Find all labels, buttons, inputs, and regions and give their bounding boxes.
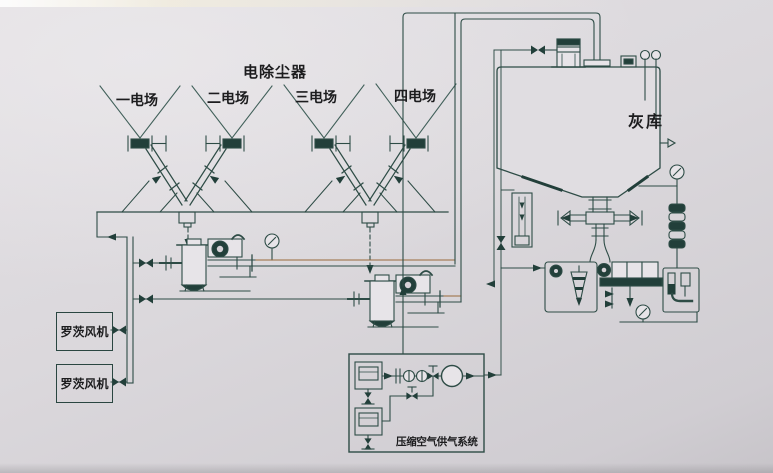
- air-compressor-2: [355, 408, 382, 450]
- field-label-2: 二电场: [207, 88, 249, 108]
- field-label-4: 四电场: [394, 86, 436, 106]
- field-label-1: 一电场: [116, 90, 158, 110]
- telescopic-chute: [639, 165, 685, 268]
- roots-blower-1-label: 罗茨风机: [60, 323, 108, 340]
- roots-blower-1: 罗茨风机: [56, 312, 113, 351]
- air-system-label: 压缩空气供气系统: [396, 434, 478, 449]
- humidifying-mixer: [598, 262, 698, 322]
- silo-discharge: [558, 197, 642, 262]
- air-lance-box: [512, 193, 532, 247]
- air-receiver: [442, 366, 463, 387]
- conveying-pump-1: [160, 235, 256, 291]
- roots-blower-2-label: 罗茨风机: [60, 375, 108, 392]
- loading-spout-box: [663, 268, 699, 312]
- precipitator-title: 电除尘器: [243, 61, 307, 82]
- esp-hopper-valves: [128, 136, 428, 151]
- sight-glass: [670, 165, 684, 179]
- ash-handling-diagram-page: 电除尘器 一电场 二电场 三电场 四电场 灰库 罗茨风机 罗茨风机 压缩空气供气…: [0, 0, 773, 473]
- roots-blower-2: 罗茨风机: [56, 364, 113, 403]
- silo-label: 灰库: [628, 108, 664, 132]
- field-label-3: 三电场: [295, 87, 337, 107]
- pressure-gauge-pump-line: [265, 234, 279, 260]
- conveying-pump-2: [348, 271, 444, 327]
- esp-chutes: [122, 145, 435, 212]
- blower-network: [97, 212, 350, 387]
- air-compressor-1: [355, 362, 382, 404]
- loading-pressure-gauge: [636, 305, 650, 319]
- ejector-box: [501, 262, 597, 312]
- diagram-canvas: [0, 0, 773, 473]
- silo-vent-filter: [552, 39, 585, 67]
